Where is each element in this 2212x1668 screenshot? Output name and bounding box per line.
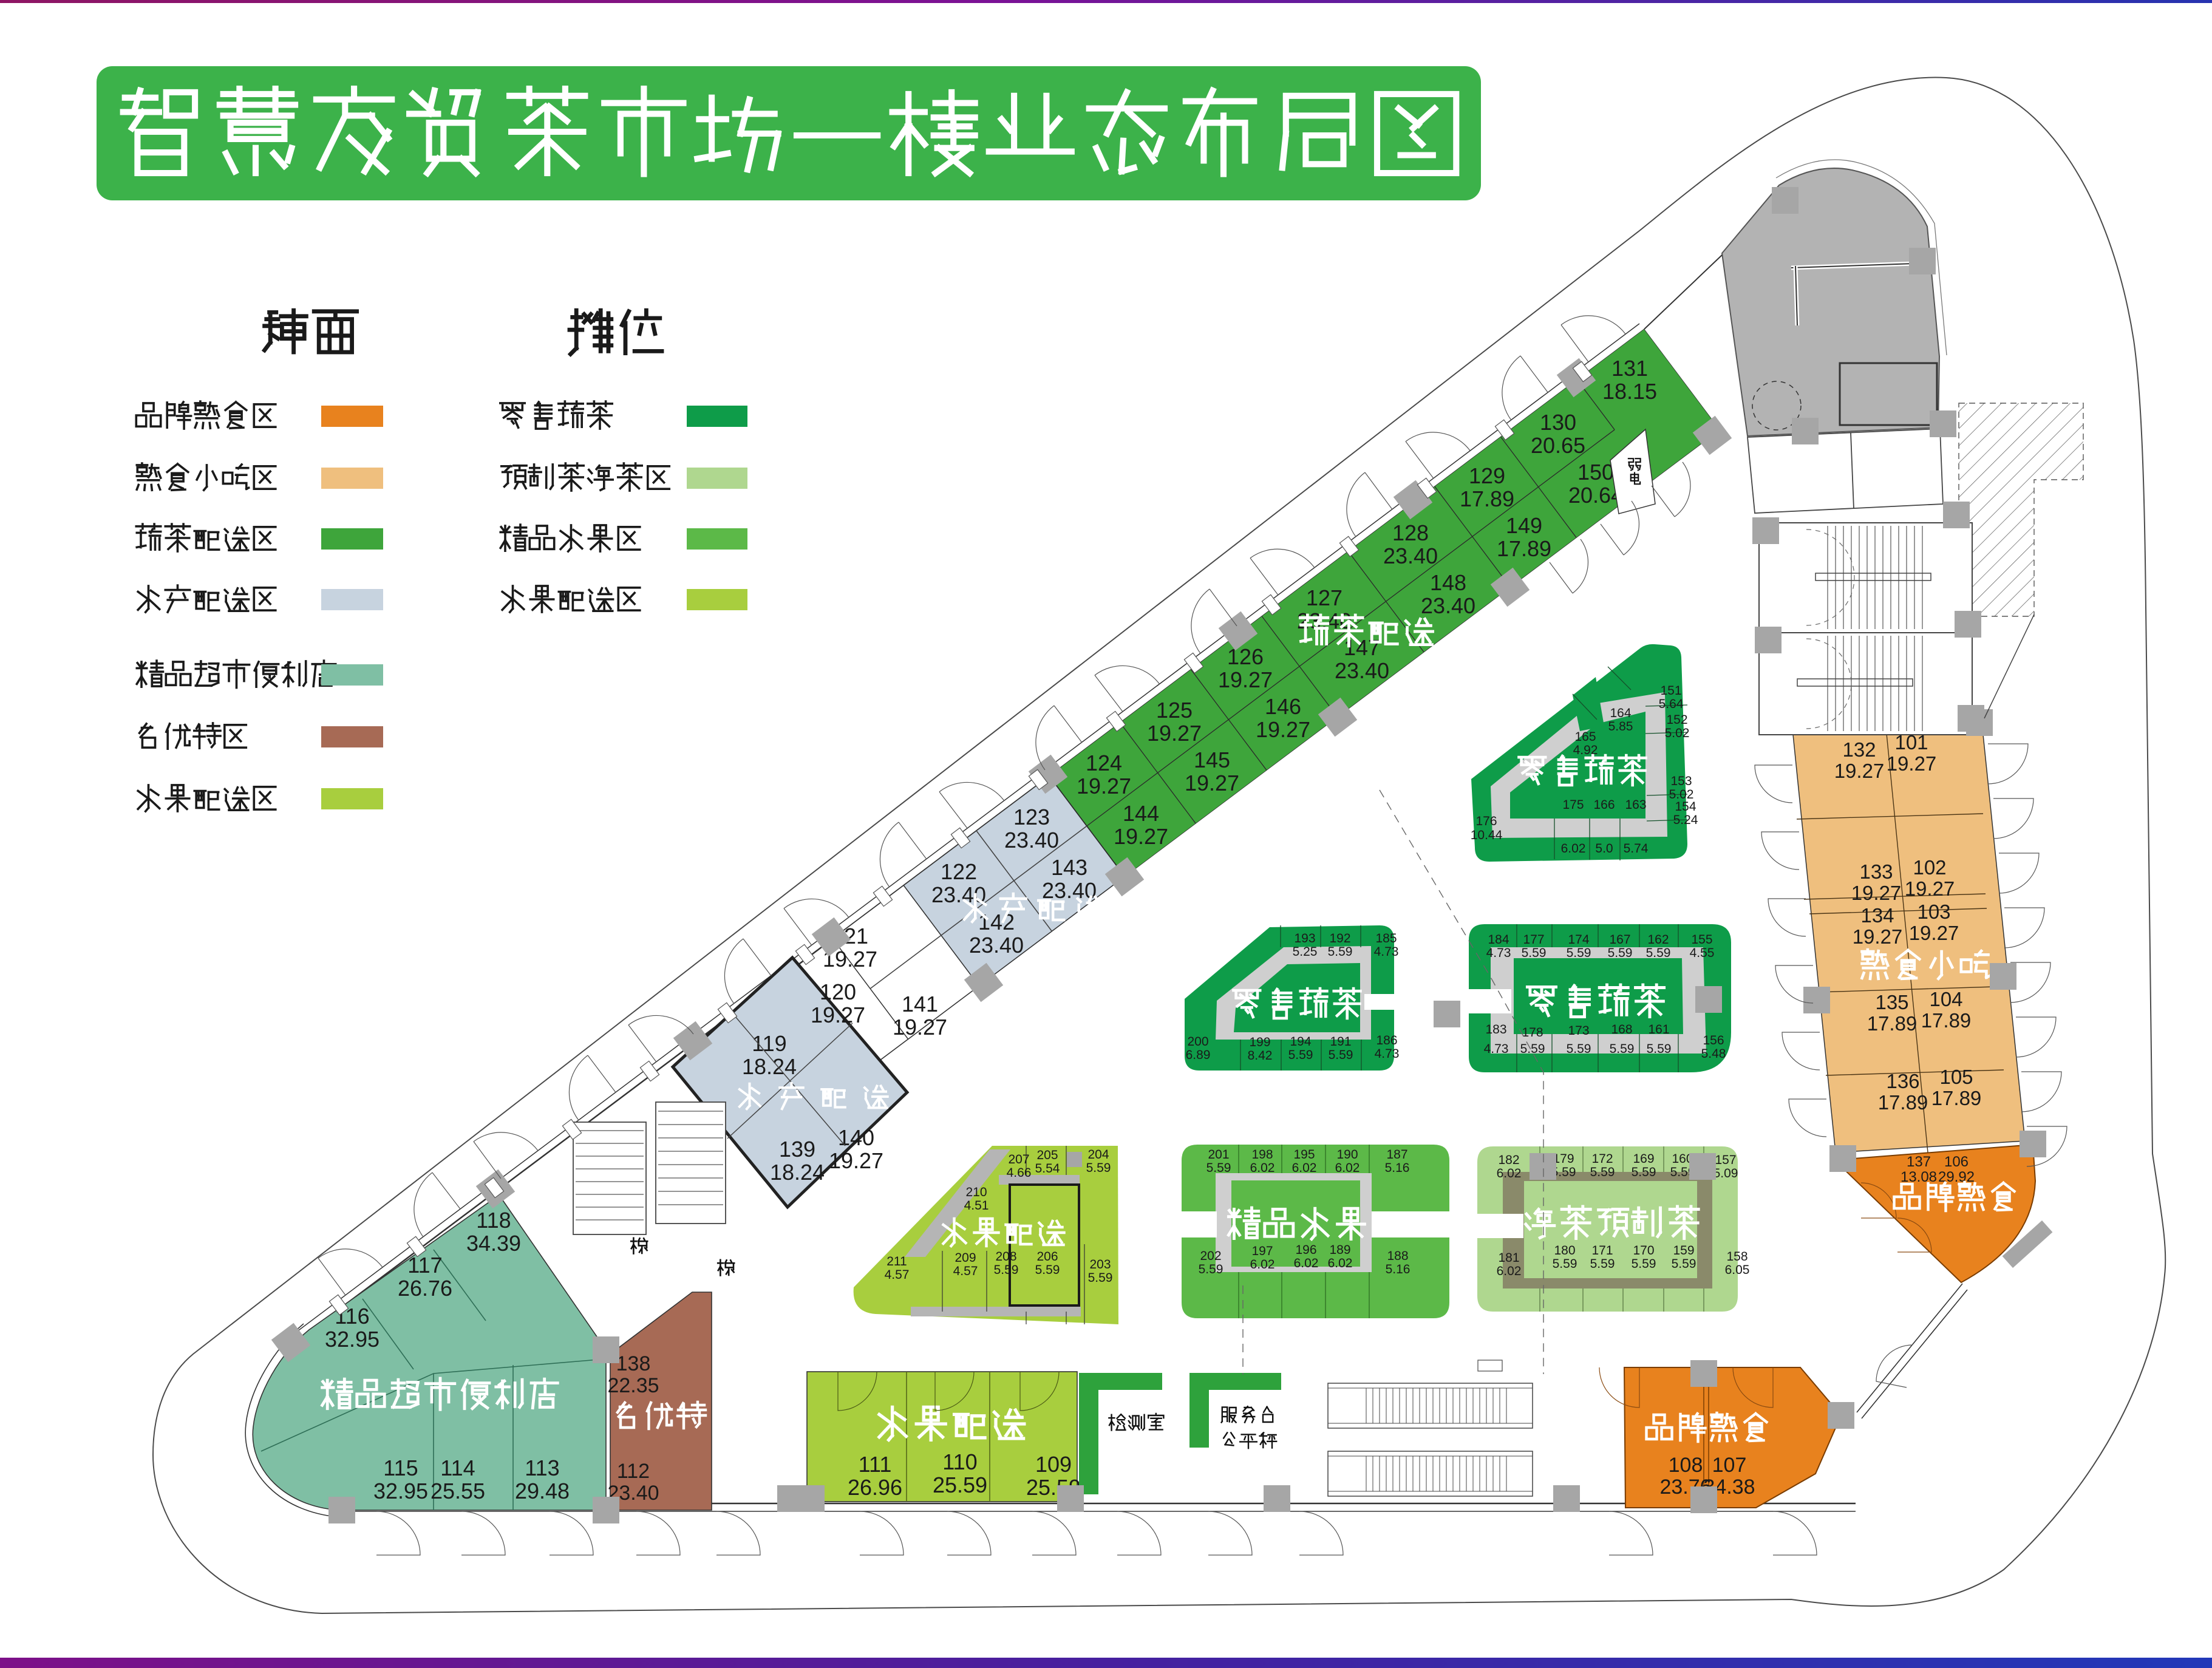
- svg-text:205: 205: [1036, 1148, 1058, 1162]
- svg-text:123: 123: [1013, 805, 1050, 829]
- svg-text:5.59: 5.59: [1329, 1048, 1353, 1062]
- svg-text:5.02: 5.02: [1665, 726, 1690, 740]
- svg-text:5.0: 5.0: [1595, 842, 1613, 856]
- svg-text:17.89: 17.89: [1931, 1087, 1982, 1109]
- svg-text:5.59: 5.59: [1647, 1042, 1672, 1056]
- svg-text:140: 140: [838, 1125, 874, 1150]
- svg-text:17.89: 17.89: [1460, 486, 1514, 511]
- svg-text:104: 104: [1929, 988, 1962, 1010]
- svg-text:138: 138: [616, 1352, 651, 1375]
- svg-text:4.73: 4.73: [1375, 1047, 1400, 1061]
- svg-text:5.59: 5.59: [1086, 1161, 1111, 1175]
- svg-text:112: 112: [617, 1460, 650, 1483]
- svg-text:19.27: 19.27: [811, 1003, 865, 1027]
- svg-text:106: 106: [1944, 1154, 1969, 1170]
- svg-text:18.15: 18.15: [1602, 379, 1657, 404]
- svg-text:29.48: 29.48: [515, 1479, 570, 1503]
- svg-text:191: 191: [1330, 1035, 1351, 1049]
- svg-text:181: 181: [1498, 1251, 1519, 1265]
- svg-text:133: 133: [1859, 860, 1893, 883]
- svg-text:19.27: 19.27: [1909, 922, 1959, 944]
- svg-text:4.51: 4.51: [964, 1199, 989, 1213]
- svg-text:154: 154: [1675, 800, 1696, 814]
- svg-text:17.89: 17.89: [1867, 1012, 1918, 1035]
- svg-text:180: 180: [1554, 1244, 1575, 1258]
- svg-text:119: 119: [752, 1031, 786, 1056]
- svg-text:5.59: 5.59: [1567, 946, 1591, 960]
- svg-text:152: 152: [1666, 713, 1687, 727]
- svg-text:105: 105: [1939, 1066, 1973, 1088]
- svg-text:128: 128: [1392, 520, 1429, 545]
- svg-text:32.95: 32.95: [373, 1479, 428, 1503]
- svg-text:18.24: 18.24: [770, 1160, 825, 1185]
- svg-text:155: 155: [1691, 933, 1712, 947]
- svg-text:34.39: 34.39: [466, 1231, 521, 1256]
- svg-text:23.40: 23.40: [1335, 658, 1389, 683]
- svg-text:129: 129: [1469, 463, 1505, 488]
- svg-text:5.48: 5.48: [1701, 1047, 1726, 1061]
- svg-text:5.85: 5.85: [1608, 720, 1633, 734]
- svg-text:19.27: 19.27: [1185, 771, 1239, 795]
- svg-text:10.44: 10.44: [1471, 828, 1503, 842]
- svg-text:5.59: 5.59: [1672, 1257, 1696, 1271]
- svg-text:199: 199: [1249, 1035, 1270, 1049]
- svg-text:197: 197: [1251, 1244, 1273, 1258]
- svg-text:6.02: 6.02: [1335, 1161, 1360, 1175]
- svg-text:192: 192: [1329, 931, 1350, 945]
- svg-text:102: 102: [1913, 856, 1946, 879]
- svg-text:8.42: 8.42: [1248, 1049, 1273, 1063]
- svg-text:5.59: 5.59: [1632, 1257, 1656, 1271]
- svg-text:174: 174: [1568, 933, 1589, 947]
- svg-text:178: 178: [1522, 1026, 1543, 1040]
- svg-text:19.27: 19.27: [1851, 882, 1902, 904]
- svg-text:137: 137: [1907, 1154, 1931, 1170]
- svg-text:5.59: 5.59: [1520, 1042, 1545, 1056]
- svg-text:5.16: 5.16: [1386, 1262, 1411, 1276]
- svg-text:188: 188: [1387, 1249, 1408, 1263]
- svg-text:209: 209: [955, 1251, 976, 1265]
- svg-text:208: 208: [995, 1250, 1016, 1264]
- svg-text:206: 206: [1036, 1250, 1058, 1264]
- svg-text:5.25: 5.25: [1293, 945, 1318, 959]
- svg-text:5.59: 5.59: [1328, 945, 1353, 959]
- svg-text:185: 185: [1375, 931, 1397, 945]
- svg-text:4.57: 4.57: [885, 1268, 910, 1282]
- svg-text:117: 117: [407, 1253, 442, 1278]
- svg-text:120: 120: [820, 979, 856, 1004]
- svg-text:207: 207: [1008, 1152, 1029, 1166]
- svg-text:184: 184: [1488, 933, 1509, 947]
- svg-text:5.59: 5.59: [1632, 1165, 1656, 1179]
- svg-text:163: 163: [1625, 798, 1646, 812]
- svg-text:20.65: 20.65: [1531, 433, 1585, 458]
- svg-text:6.02: 6.02: [1328, 1256, 1353, 1270]
- svg-text:201: 201: [1208, 1148, 1229, 1162]
- svg-text:143: 143: [1051, 855, 1087, 880]
- svg-text:26.76: 26.76: [398, 1276, 452, 1301]
- svg-text:4.66: 4.66: [1007, 1166, 1032, 1180]
- svg-text:159: 159: [1673, 1244, 1694, 1258]
- svg-text:161: 161: [1648, 1023, 1669, 1037]
- svg-text:32.95: 32.95: [325, 1327, 379, 1352]
- svg-text:19.27: 19.27: [1887, 752, 1937, 775]
- svg-text:150: 150: [1577, 460, 1614, 485]
- svg-text:202: 202: [1200, 1249, 1221, 1263]
- svg-text:5.16: 5.16: [1385, 1161, 1410, 1175]
- svg-text:4.73: 4.73: [1486, 946, 1511, 960]
- svg-text:6.05: 6.05: [1725, 1263, 1750, 1277]
- svg-text:4.57: 4.57: [953, 1264, 978, 1278]
- svg-text:194: 194: [1290, 1035, 1311, 1049]
- svg-text:6.02: 6.02: [1497, 1264, 1522, 1278]
- svg-text:6.02: 6.02: [1292, 1161, 1317, 1175]
- svg-text:17.89: 17.89: [1921, 1009, 1972, 1032]
- svg-text:4.73: 4.73: [1374, 945, 1399, 959]
- svg-text:134: 134: [1860, 904, 1894, 927]
- svg-text:19.27: 19.27: [1147, 721, 1202, 746]
- svg-text:170: 170: [1633, 1244, 1654, 1258]
- svg-text:5.74: 5.74: [1624, 842, 1649, 856]
- svg-text:4.55: 4.55: [1690, 946, 1715, 960]
- svg-text:211: 211: [887, 1254, 907, 1268]
- svg-text:19.27: 19.27: [1905, 877, 1955, 900]
- svg-text:189: 189: [1329, 1243, 1350, 1257]
- svg-text:6.02: 6.02: [1250, 1258, 1275, 1271]
- svg-text:141: 141: [902, 992, 938, 1016]
- svg-text:173: 173: [1568, 1024, 1589, 1038]
- svg-text:19.27: 19.27: [1834, 760, 1885, 782]
- svg-text:5.54: 5.54: [1035, 1162, 1060, 1176]
- svg-text:182: 182: [1498, 1153, 1519, 1167]
- svg-text:19.27: 19.27: [1853, 925, 1903, 948]
- svg-text:23.40: 23.40: [1421, 593, 1475, 618]
- svg-text:158: 158: [1726, 1250, 1747, 1264]
- svg-text:210: 210: [965, 1185, 987, 1199]
- svg-text:193: 193: [1294, 931, 1315, 945]
- svg-text:5.59: 5.59: [1035, 1263, 1060, 1277]
- svg-text:127: 127: [1306, 585, 1343, 610]
- svg-text:169: 169: [1633, 1152, 1654, 1166]
- svg-text:6.02: 6.02: [1294, 1256, 1319, 1270]
- svg-text:132: 132: [1842, 738, 1876, 761]
- svg-text:196: 196: [1295, 1243, 1316, 1257]
- svg-text:114: 114: [440, 1455, 475, 1480]
- svg-text:126: 126: [1227, 644, 1264, 669]
- svg-text:136: 136: [1886, 1070, 1919, 1092]
- svg-text:162: 162: [1647, 933, 1669, 947]
- svg-text:148: 148: [1430, 570, 1466, 595]
- svg-text:26.96: 26.96: [848, 1475, 902, 1500]
- svg-text:172: 172: [1591, 1152, 1613, 1166]
- svg-text:19.27: 19.27: [1114, 824, 1168, 849]
- svg-text:5.59: 5.59: [1088, 1271, 1113, 1285]
- svg-text:165: 165: [1574, 730, 1596, 744]
- svg-text:135: 135: [1875, 991, 1908, 1013]
- svg-text:190: 190: [1336, 1148, 1358, 1162]
- svg-text:23.40: 23.40: [1004, 828, 1059, 853]
- svg-text:118: 118: [476, 1208, 511, 1233]
- svg-text:108: 108: [1669, 1454, 1703, 1477]
- svg-text:164: 164: [1610, 706, 1631, 720]
- svg-text:5.59: 5.59: [1199, 1262, 1223, 1276]
- svg-text:6.02: 6.02: [1561, 842, 1586, 856]
- svg-text:153: 153: [1670, 774, 1692, 788]
- svg-text:5.59: 5.59: [994, 1263, 1019, 1277]
- svg-text:19.27: 19.27: [1218, 667, 1273, 692]
- svg-text:5.09: 5.09: [1713, 1166, 1738, 1180]
- svg-text:176: 176: [1475, 814, 1497, 828]
- svg-text:6.02: 6.02: [1250, 1161, 1275, 1175]
- svg-text:124: 124: [1086, 751, 1122, 775]
- svg-text:19.27: 19.27: [893, 1015, 947, 1040]
- svg-text:5.59: 5.59: [1553, 1257, 1577, 1271]
- svg-text:156: 156: [1703, 1033, 1724, 1047]
- svg-text:171: 171: [1591, 1244, 1613, 1258]
- svg-text:23.40: 23.40: [1383, 543, 1438, 568]
- svg-text:19.27: 19.27: [1077, 774, 1131, 798]
- svg-text:203: 203: [1089, 1258, 1111, 1271]
- svg-text:19.27: 19.27: [1256, 717, 1310, 742]
- svg-text:139: 139: [779, 1137, 815, 1162]
- svg-text:204: 204: [1087, 1148, 1109, 1162]
- svg-text:131: 131: [1611, 356, 1648, 381]
- svg-text:5.59: 5.59: [1567, 1042, 1591, 1056]
- svg-text:183: 183: [1485, 1023, 1506, 1037]
- svg-text:6.89: 6.89: [1186, 1048, 1211, 1062]
- svg-text:175: 175: [1562, 798, 1584, 812]
- svg-text:113: 113: [525, 1455, 559, 1480]
- svg-text:5.59: 5.59: [1590, 1165, 1615, 1179]
- svg-text:4.73: 4.73: [1484, 1042, 1509, 1056]
- svg-text:5.59: 5.59: [1206, 1161, 1231, 1175]
- svg-text:5.59: 5.59: [1608, 946, 1633, 960]
- svg-text:122: 122: [941, 859, 977, 884]
- svg-text:200: 200: [1187, 1035, 1208, 1049]
- svg-text:5.64: 5.64: [1659, 697, 1684, 711]
- svg-text:198: 198: [1251, 1148, 1273, 1162]
- svg-text:5.59: 5.59: [1522, 946, 1547, 960]
- svg-text:5.24: 5.24: [1673, 813, 1698, 827]
- svg-text:142: 142: [978, 910, 1015, 934]
- svg-text:166: 166: [1593, 798, 1615, 812]
- svg-text:6.02: 6.02: [1497, 1166, 1522, 1180]
- svg-text:17.89: 17.89: [1878, 1091, 1928, 1114]
- svg-text:5.59: 5.59: [1646, 946, 1671, 960]
- svg-text:17.89: 17.89: [1497, 536, 1551, 561]
- svg-text:187: 187: [1386, 1148, 1407, 1162]
- svg-text:5.59: 5.59: [1610, 1042, 1635, 1056]
- svg-text:5.59: 5.59: [1288, 1048, 1313, 1062]
- svg-text:23.40: 23.40: [931, 882, 986, 907]
- svg-text:146: 146: [1265, 694, 1301, 719]
- svg-text:18.24: 18.24: [742, 1054, 797, 1079]
- svg-text:25.55: 25.55: [430, 1479, 485, 1503]
- svg-text:130: 130: [1540, 410, 1576, 435]
- svg-text:195: 195: [1293, 1148, 1315, 1162]
- svg-text:125: 125: [1156, 698, 1193, 723]
- svg-text:22.35: 22.35: [607, 1374, 659, 1397]
- svg-text:186: 186: [1376, 1033, 1397, 1047]
- svg-text:115: 115: [383, 1455, 418, 1480]
- svg-text:107: 107: [1712, 1454, 1747, 1477]
- svg-text:144: 144: [1123, 801, 1159, 826]
- svg-text:110: 110: [942, 1449, 977, 1474]
- svg-text:149: 149: [1506, 513, 1542, 538]
- svg-text:168: 168: [1611, 1023, 1632, 1037]
- svg-text:25.59: 25.59: [933, 1472, 987, 1497]
- svg-text:157: 157: [1715, 1153, 1736, 1167]
- svg-text:167: 167: [1609, 933, 1630, 947]
- svg-text:5.59: 5.59: [1590, 1257, 1615, 1271]
- svg-text:19.27: 19.27: [829, 1148, 883, 1173]
- svg-text:103: 103: [1917, 900, 1950, 923]
- svg-text:23.40: 23.40: [969, 933, 1024, 958]
- svg-text:177: 177: [1523, 933, 1544, 947]
- svg-text:111: 111: [859, 1452, 892, 1477]
- svg-text:109: 109: [1035, 1452, 1072, 1477]
- svg-text:151: 151: [1660, 684, 1681, 698]
- svg-text:145: 145: [1194, 747, 1230, 772]
